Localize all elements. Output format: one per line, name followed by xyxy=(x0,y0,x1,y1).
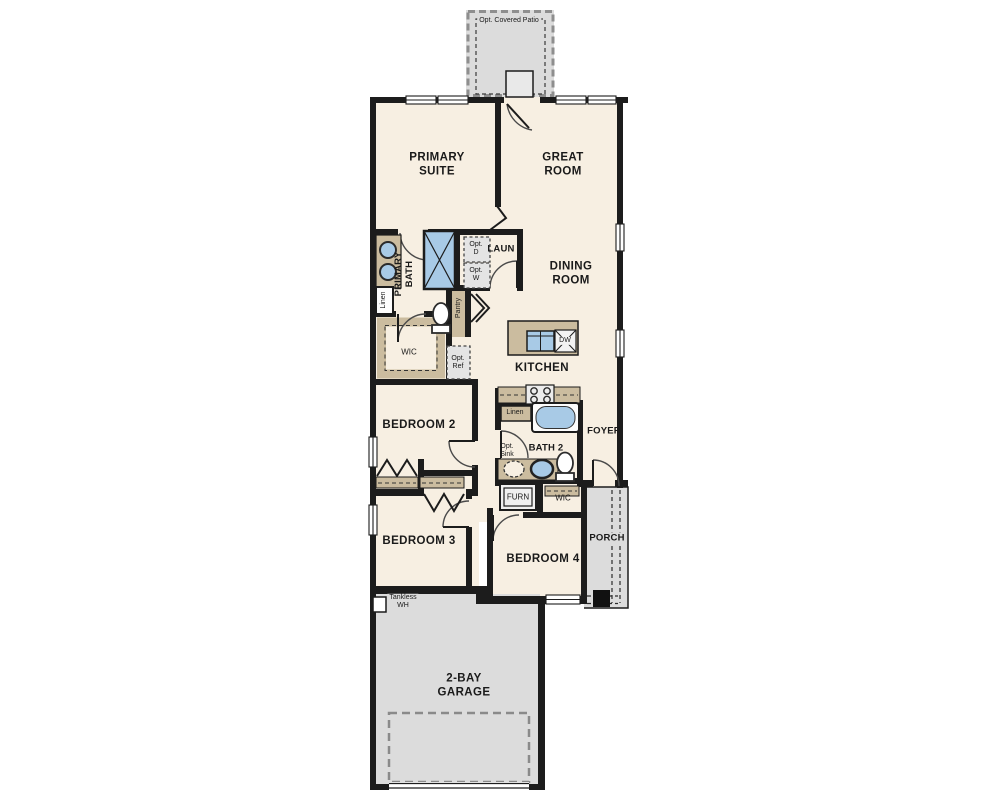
toilet xyxy=(557,453,573,474)
label-opt-covered-patio: Opt. Covered Patio xyxy=(477,17,541,25)
porch-post xyxy=(593,590,610,607)
label-opt-ref: Opt. Ref xyxy=(451,355,464,372)
label-opt-sink: Opt. Sink xyxy=(500,443,514,460)
label-bedroom-3: BEDROOM 3 xyxy=(382,535,455,549)
label-wic-bedroom4: WIC xyxy=(555,493,571,502)
label-linen-primary: Linen xyxy=(380,291,388,308)
floorplan-drawing xyxy=(0,0,1000,800)
label-kitchen: KITCHEN xyxy=(515,362,569,376)
label-great-room: GREAT ROOM xyxy=(542,151,583,178)
porch-area xyxy=(584,487,628,608)
label-linen-bath2: Linen xyxy=(506,409,523,417)
patio-door-panel xyxy=(506,71,533,97)
label-opt-dryer: Opt. D xyxy=(469,241,482,258)
label-primary-bath: PRIMARY BATH xyxy=(393,252,415,297)
label-opt-washer: Opt. W xyxy=(469,267,482,284)
optional-sink xyxy=(504,461,524,477)
floor-plan: Opt. Covered Patio PRIMARY SUITE GREAT R… xyxy=(0,0,1000,800)
label-bedroom-2: BEDROOM 2 xyxy=(382,419,455,433)
label-bath-2: BATH 2 xyxy=(529,442,564,453)
label-porch: PORCH xyxy=(587,532,626,543)
label-primary-suite: PRIMARY SUITE xyxy=(409,151,464,178)
label-garage: 2-BAY GARAGE xyxy=(438,672,491,699)
label-pantry: Pantry xyxy=(455,298,463,318)
label-dishwasher: DW xyxy=(558,337,572,345)
label-wic-primary: WIC xyxy=(401,347,417,356)
tankless-water-heater xyxy=(373,597,386,612)
toilet xyxy=(433,303,449,325)
label-dining-room: DINING ROOM xyxy=(550,260,593,287)
label-tankless-wh: Tankless WH xyxy=(387,594,418,611)
label-bedroom-4: BEDROOM 4 xyxy=(506,553,579,567)
sink xyxy=(531,460,553,478)
label-foyer: FOYER xyxy=(587,425,621,436)
label-laundry: LAUN xyxy=(487,243,514,254)
label-furnace: FURN xyxy=(507,492,529,501)
